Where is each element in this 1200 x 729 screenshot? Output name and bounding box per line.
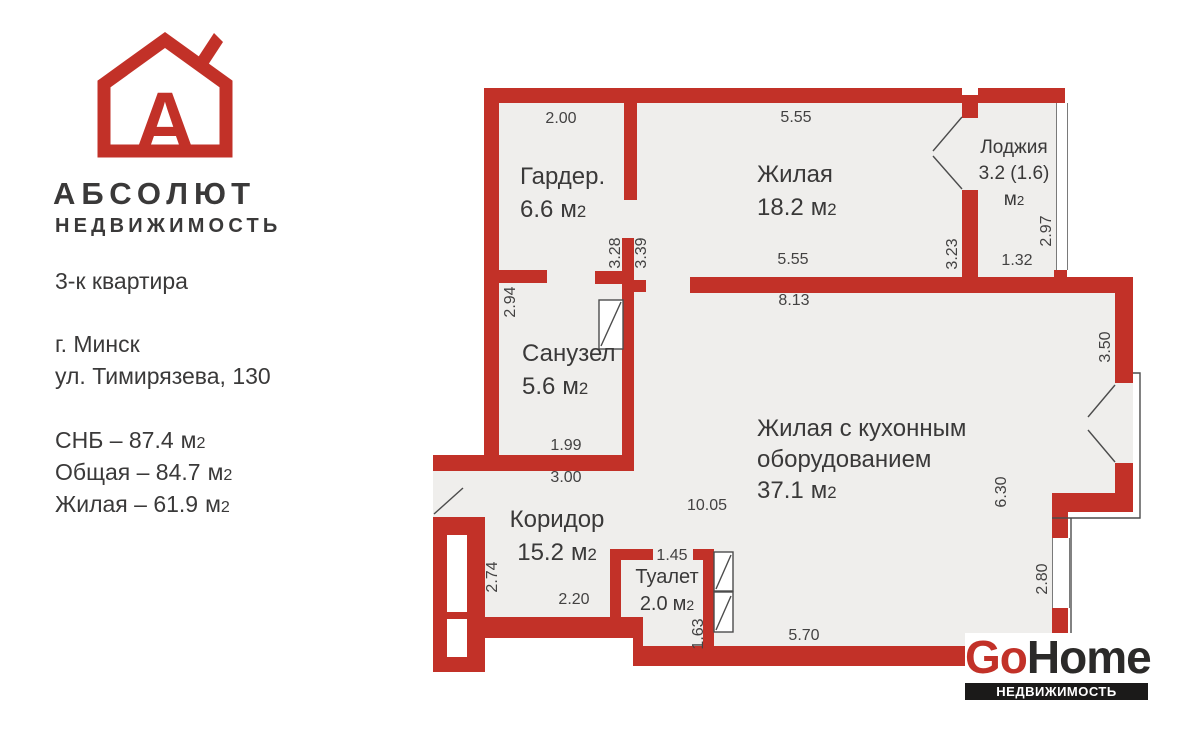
gohome-wordmark: GoHome: [965, 633, 1161, 681]
wall: [499, 270, 547, 283]
company-subtitle: НЕДВИЖИМОСТЬ: [55, 215, 281, 238]
dim-label: 2.20: [558, 591, 589, 609]
wall: [1115, 463, 1133, 493]
dim-label: 3.39: [633, 237, 651, 268]
gohome-logo: GoHome НЕДВИЖИМОСТЬ БЕЛАРУСИ: [965, 633, 1161, 718]
outside-cut: [485, 638, 633, 666]
wall: [634, 280, 646, 292]
wall: [478, 617, 643, 638]
room-label-kitchen: Жилая с кухонным оборудованием 37.1м2: [757, 413, 966, 508]
wall: [624, 103, 637, 200]
unit-m2: м2: [811, 477, 837, 504]
dim-label: 1.99: [550, 437, 581, 455]
dim-label: 3.00: [550, 469, 581, 487]
area-row-living: Жилая – 61.9м2: [55, 491, 230, 518]
wall: [610, 549, 653, 560]
wall: [595, 271, 622, 284]
gohome-go: Go: [965, 631, 1027, 683]
logo-letter: А: [135, 75, 196, 165]
kitchen-window: [1052, 538, 1070, 608]
company-name: АБСОЛЮТ: [53, 176, 256, 212]
dim-label: 1.45: [656, 547, 687, 565]
dim-label: 2.74: [484, 561, 502, 592]
real-estate-flyer: А АБСОЛЮТ НЕДВИЖИМОСТЬ 3-к квартира г. М…: [0, 0, 1200, 729]
gohome-home: Home: [1027, 631, 1151, 683]
wall: [1052, 608, 1068, 633]
wall: [1115, 277, 1133, 383]
dim-label: 8.13: [778, 292, 809, 310]
unit-m2: м2: [571, 539, 597, 566]
unit-m2: м2: [560, 196, 586, 223]
company-logo-icon: А: [95, 27, 237, 165]
shaft-niche: [447, 619, 467, 657]
unit-m2: м2: [811, 194, 837, 221]
wall-notch: [962, 88, 978, 95]
unit-m2: м2: [1004, 189, 1024, 210]
dim-label: 2.00: [545, 110, 576, 128]
room-label-bathroom: Санузел 5.6м2: [522, 337, 616, 405]
shaft-niche: [447, 535, 467, 612]
dim-label: 10.05: [687, 497, 727, 515]
unit-m2: м2: [205, 491, 230, 517]
room-label-loggia: Лоджия 3.2 (1.6) м2: [968, 135, 1060, 214]
dim-label: 2.94: [502, 286, 520, 317]
dim-label: 6.30: [993, 476, 1011, 507]
dim-label: 1.32: [1001, 252, 1032, 270]
dim-label: 3.28: [607, 237, 625, 268]
dim-label: 1.63: [690, 618, 708, 649]
dim-label: 5.55: [780, 109, 811, 127]
dim-label: 5.70: [788, 627, 819, 645]
gohome-tagline: НЕДВИЖИМОСТЬ БЕЛАРУСИ: [965, 683, 1148, 700]
listing-city: г. Минск: [55, 331, 140, 358]
area-row-snb: СНБ – 87.4м2: [55, 427, 205, 454]
wall: [1054, 270, 1067, 280]
dim-label: 3.50: [1097, 331, 1115, 362]
dim-label: 3.23: [944, 238, 962, 269]
room-label-wardrobe: Гардер. 6.6м2: [520, 160, 605, 228]
room-label-living: Жилая 18.2м2: [757, 158, 837, 226]
room-label-corridor: Коридор 15.2м2: [498, 503, 616, 571]
room-label-toilet: Туалет 2.0м2: [628, 564, 706, 619]
wall: [484, 88, 499, 471]
unit-m2: м2: [562, 373, 588, 400]
wall: [1052, 493, 1068, 538]
area-row-total: Общая – 84.7м2: [55, 459, 232, 486]
wall: [633, 617, 643, 646]
dim-label: 5.55: [777, 251, 808, 269]
wall: [622, 238, 634, 471]
unit-m2: м2: [208, 459, 233, 485]
listing-address: ул. Тимирязева, 130: [55, 363, 271, 390]
wall: [433, 455, 633, 471]
dim-label: 2.80: [1034, 563, 1052, 594]
dim-label: 2.97: [1038, 215, 1056, 246]
unit-m2: м2: [181, 427, 206, 453]
unit-m2: м2: [673, 593, 695, 615]
listing-type: 3-к квартира: [55, 268, 188, 295]
chimney-icon: [197, 33, 223, 68]
wall: [962, 95, 978, 118]
